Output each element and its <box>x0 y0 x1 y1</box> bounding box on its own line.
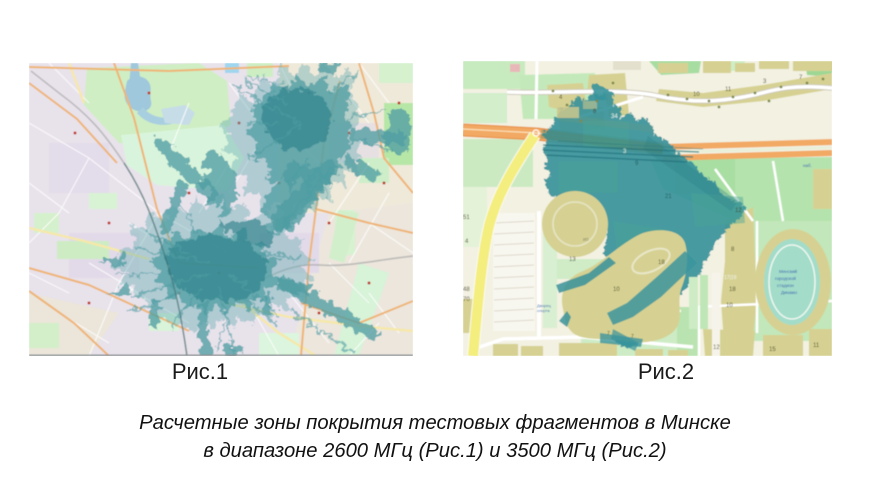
svg-text:спорта: спорта <box>537 308 550 313</box>
svg-text:12: 12 <box>735 208 742 214</box>
svg-text:10: 10 <box>726 303 733 309</box>
svg-text:11: 11 <box>813 343 820 349</box>
svg-text:11: 11 <box>725 87 732 93</box>
svg-text:городской: городской <box>775 275 796 281</box>
svg-text:10: 10 <box>613 287 620 293</box>
svg-text:21: 21 <box>665 194 672 200</box>
svg-text:15: 15 <box>769 347 776 353</box>
svg-text:48: 48 <box>463 287 470 293</box>
svg-text:51: 51 <box>463 215 470 221</box>
svg-text:12: 12 <box>713 345 720 351</box>
svg-text:17|19: 17|19 <box>724 275 737 281</box>
svg-text:Минский: Минский <box>779 268 797 274</box>
svg-text:18: 18 <box>729 287 736 293</box>
svg-text:10: 10 <box>693 92 700 98</box>
svg-text:7: 7 <box>631 334 634 340</box>
svg-text:наб.: наб. <box>803 163 812 168</box>
svg-text:7: 7 <box>607 331 610 337</box>
svg-text:34: 34 <box>611 114 618 120</box>
svg-text:Динамо: Динамо <box>781 290 798 295</box>
svg-text:70: 70 <box>463 297 470 303</box>
svg-text:18: 18 <box>658 260 665 266</box>
svg-text:13: 13 <box>569 257 576 263</box>
svg-text:ип: ип <box>583 237 589 243</box>
svg-text:стадион: стадион <box>777 283 794 288</box>
